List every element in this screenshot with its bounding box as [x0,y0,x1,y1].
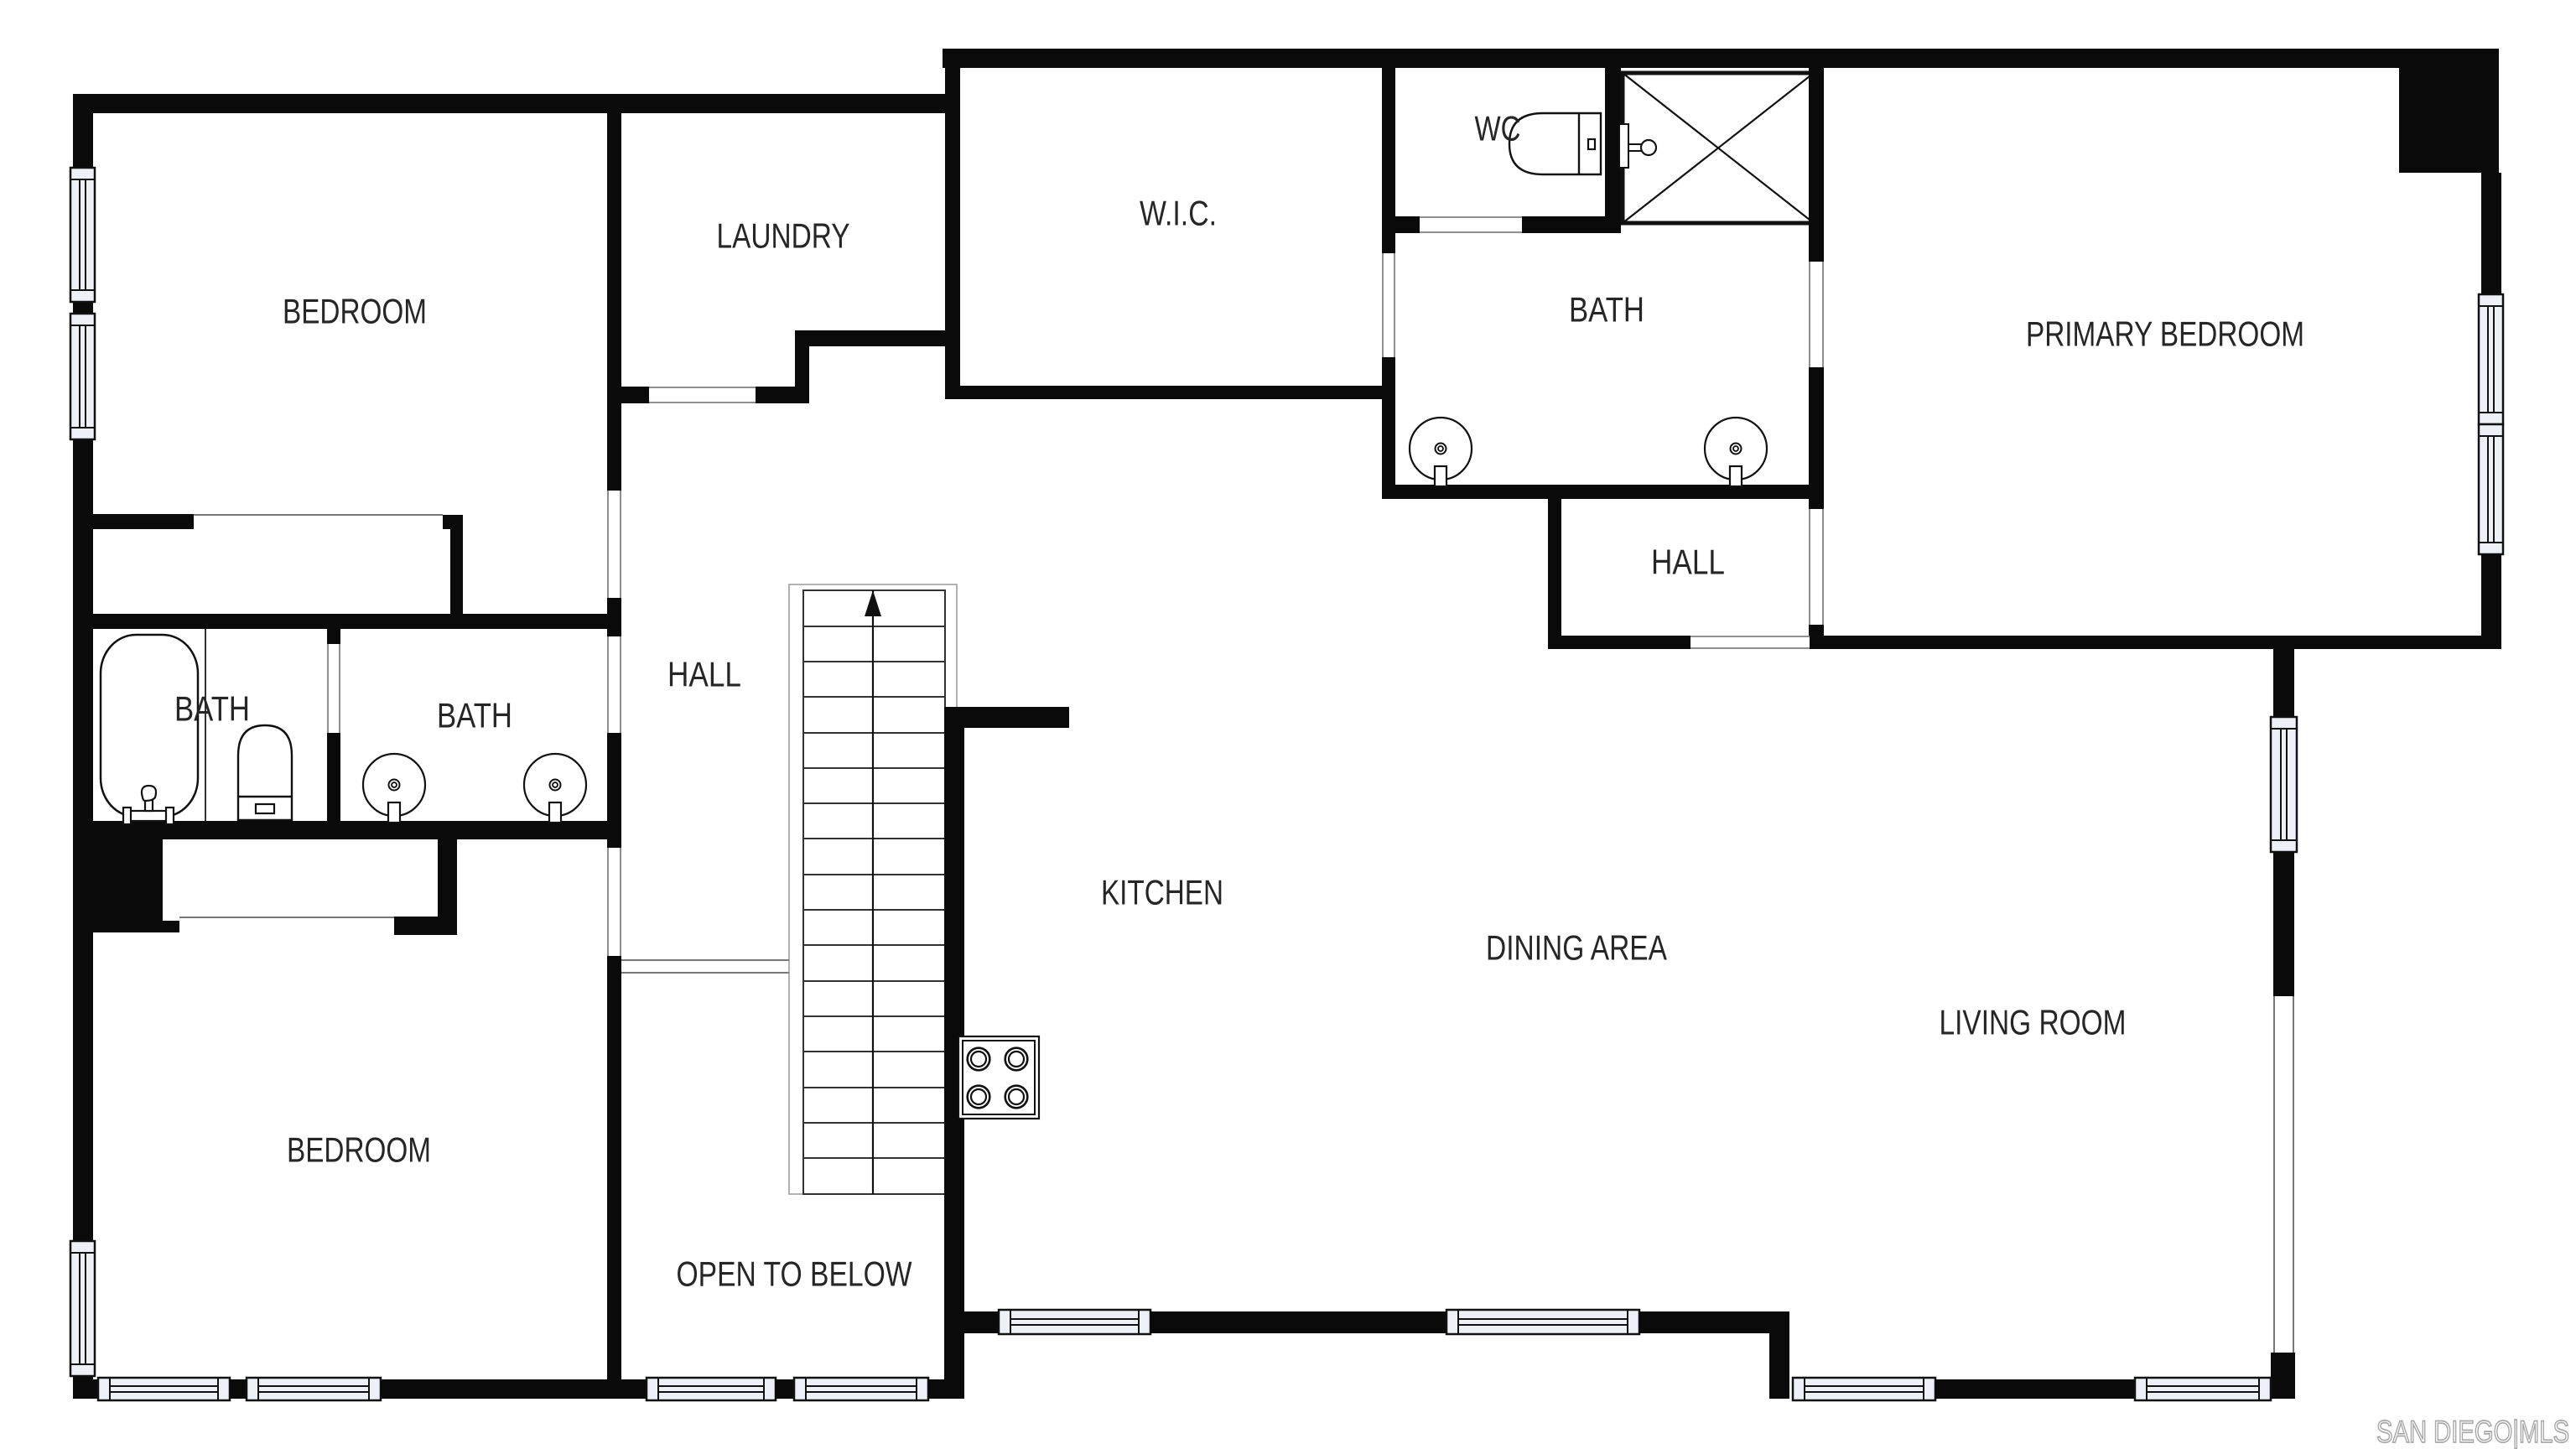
svg-text:LIVING ROOM: LIVING ROOM [1940,1003,2127,1042]
svg-text:HALL: HALL [1651,543,1725,582]
svg-text:LAUNDRY: LAUNDRY [717,216,850,256]
svg-text:BEDROOM: BEDROOM [283,292,427,331]
svg-text:PRIMARY BEDROOM: PRIMARY BEDROOM [2026,314,2304,354]
svg-text:BATH: BATH [1569,290,1644,330]
svg-text:SAN DIEGO|MLS: SAN DIEGO|MLS [2376,1415,2569,1449]
svg-text:KITCHEN: KITCHEN [1101,873,1223,912]
svg-text:BATH: BATH [437,696,512,735]
svg-text:WC: WC [1475,109,1521,148]
svg-text:BEDROOM: BEDROOM [287,1130,431,1170]
svg-text:DINING AREA: DINING AREA [1486,928,1667,968]
svg-text:OPEN TO BELOW: OPEN TO BELOW [677,1254,912,1294]
svg-text:BATH: BATH [174,689,250,729]
svg-text:HALL: HALL [667,655,741,694]
svg-text:W.I.C.: W.I.C. [1140,194,1217,233]
